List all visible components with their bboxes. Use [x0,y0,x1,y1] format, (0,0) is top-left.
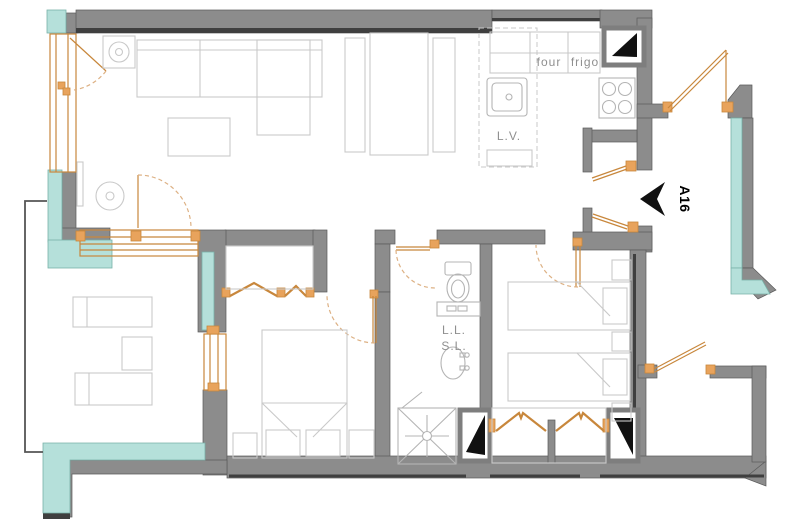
hall-door1-hinge [626,161,636,171]
hall-door2-leaf [593,214,628,226]
hall-door2-leaf2 [592,217,627,229]
entrance-arrow-icon [640,182,665,216]
washing-machine-label: L.L. [442,323,466,337]
slider-post-mid [131,231,141,241]
entrance-door-leaf [668,50,726,108]
hall-door2-hinge [628,222,638,232]
glazing-corridor [731,118,742,268]
balcony-outline [25,201,47,452]
french-door-swing [74,71,106,90]
wall-bath-east [480,244,492,408]
closet1-box [226,246,313,289]
nightstand-3 [612,260,631,280]
wall-bath-west [375,292,390,463]
double-bed [262,330,347,458]
closet2-bifold-a [496,413,546,431]
sofa [137,40,322,97]
apartment-label: A16 [677,185,693,212]
pillow-1 [266,430,300,456]
wall-hall-stub-upper [583,128,592,172]
radiator [77,162,83,206]
double-bed-fold-a [262,403,297,437]
window-hinge-2 [63,88,70,95]
kitchen-counter-dashed [479,28,537,167]
hall-door1-leaf [592,166,626,178]
window-bedroom1-hinge2 [208,383,219,391]
dining-bench-left [345,38,365,152]
closet2-bifold-b [556,413,604,431]
wall-top-edge [76,28,492,33]
entrance-door-leaf2 [670,53,728,111]
sofa-chaise [257,40,310,135]
cooktop-burner-1 [603,83,616,96]
bedroom2-door-swing [536,245,578,287]
storage-door-jamb-left [645,364,654,373]
bathroom-door-swing [396,250,435,288]
bedroom1-door-swing [327,295,375,343]
wall-bath-north-b [437,230,545,244]
wall-living-west [62,172,76,230]
wall-hall-stub-lower [583,208,592,234]
toilet-tank [445,262,471,275]
kitchen-counter-return [487,150,532,166]
shower-screen [402,392,422,408]
bathroom-door-hinge [430,240,439,248]
bedroom1-door-hinge [370,290,378,298]
nightstand-4 [612,332,631,351]
double-bed-fold-b [313,403,347,437]
window-bedroom1 [204,334,226,390]
wall-vestibule-column [313,230,327,292]
glazing [43,10,770,513]
furniture [73,33,631,463]
dishwasher-label: L.V. [497,129,521,143]
dining-table [370,33,428,155]
balcony-table [122,337,152,370]
floor-plan-page: four frigo L.V. L.L. S.L. A16 [0,0,800,519]
side-table-dot [116,49,123,56]
bath-shelf-item1 [447,306,456,311]
side-table [103,36,135,68]
storage-door-jamb-right [706,365,715,374]
window-living-west [50,34,76,172]
toilet-bowl-inner [452,280,465,298]
side-table-circle [109,42,129,62]
fridge-label: frigo [571,55,599,69]
pillow-2 [306,430,340,456]
dining-bench-right [433,38,455,152]
slider-post-left [76,231,85,241]
glazing-top-left [47,10,66,33]
wall-corridor [742,118,753,268]
entrance-door-jamb-right [722,102,733,112]
coffee-table [168,118,230,156]
balcony-railing-wall [56,460,227,517]
storage-door-leaf2 [655,345,706,372]
dryer-label: S.L. [441,339,466,353]
labels: four frigo L.V. L.L. S.L. [441,55,599,353]
nightstand-2 [349,430,374,458]
shower-drain [423,432,432,441]
cooktop-burner-3 [603,101,616,114]
balcony-railing-glass [43,443,205,513]
single-bed-2-fold [577,353,610,387]
single-bed-1 [508,282,630,330]
closet1-bifold-b [285,286,306,296]
wall-kitchen-south [585,130,637,142]
bedroom2-door-hinge [573,238,582,246]
wall-top-kitchen-edge [492,18,602,21]
cooktop-burner-4 [619,101,632,114]
wall-living-bedroom1 [225,230,315,246]
lounger-1 [73,297,152,327]
glazing-living-west [48,170,62,242]
single-bed-1-pillow [603,288,627,324]
single-bed-2-pillow [603,359,627,395]
bath-shelf-item2 [458,306,467,311]
armchair-dot [106,192,114,200]
wall-entrance-jamb-right [728,85,752,118]
armchair [96,182,124,210]
kitchen-sink-basin [492,83,522,111]
oven-label: four [537,55,562,69]
lounger-2 [75,373,152,405]
single-bed-2 [508,353,630,401]
wall-bath-west-upper [375,244,390,292]
window-bedroom1-hinge [207,326,219,334]
kitchen-faucet [506,94,512,100]
single-bed-1-fold [577,282,610,316]
wall-hall-south [573,232,652,250]
floor-plan: four frigo L.V. L.L. S.L. A16 [0,0,800,519]
glazing-bedroom1-column [202,252,214,330]
wall-bath-north-a [375,230,395,244]
nightstand-1 [233,433,257,458]
entrance-marker: A16 [640,182,693,216]
hall-door1-leaf2 [593,169,627,181]
storage-door-leaf [654,342,705,369]
wall-storage-east [752,366,766,462]
slider-post-right [191,231,200,241]
cooktop-burner-2 [619,83,632,96]
slider-door-swing [138,175,191,228]
wall-closet2-post [548,420,555,463]
